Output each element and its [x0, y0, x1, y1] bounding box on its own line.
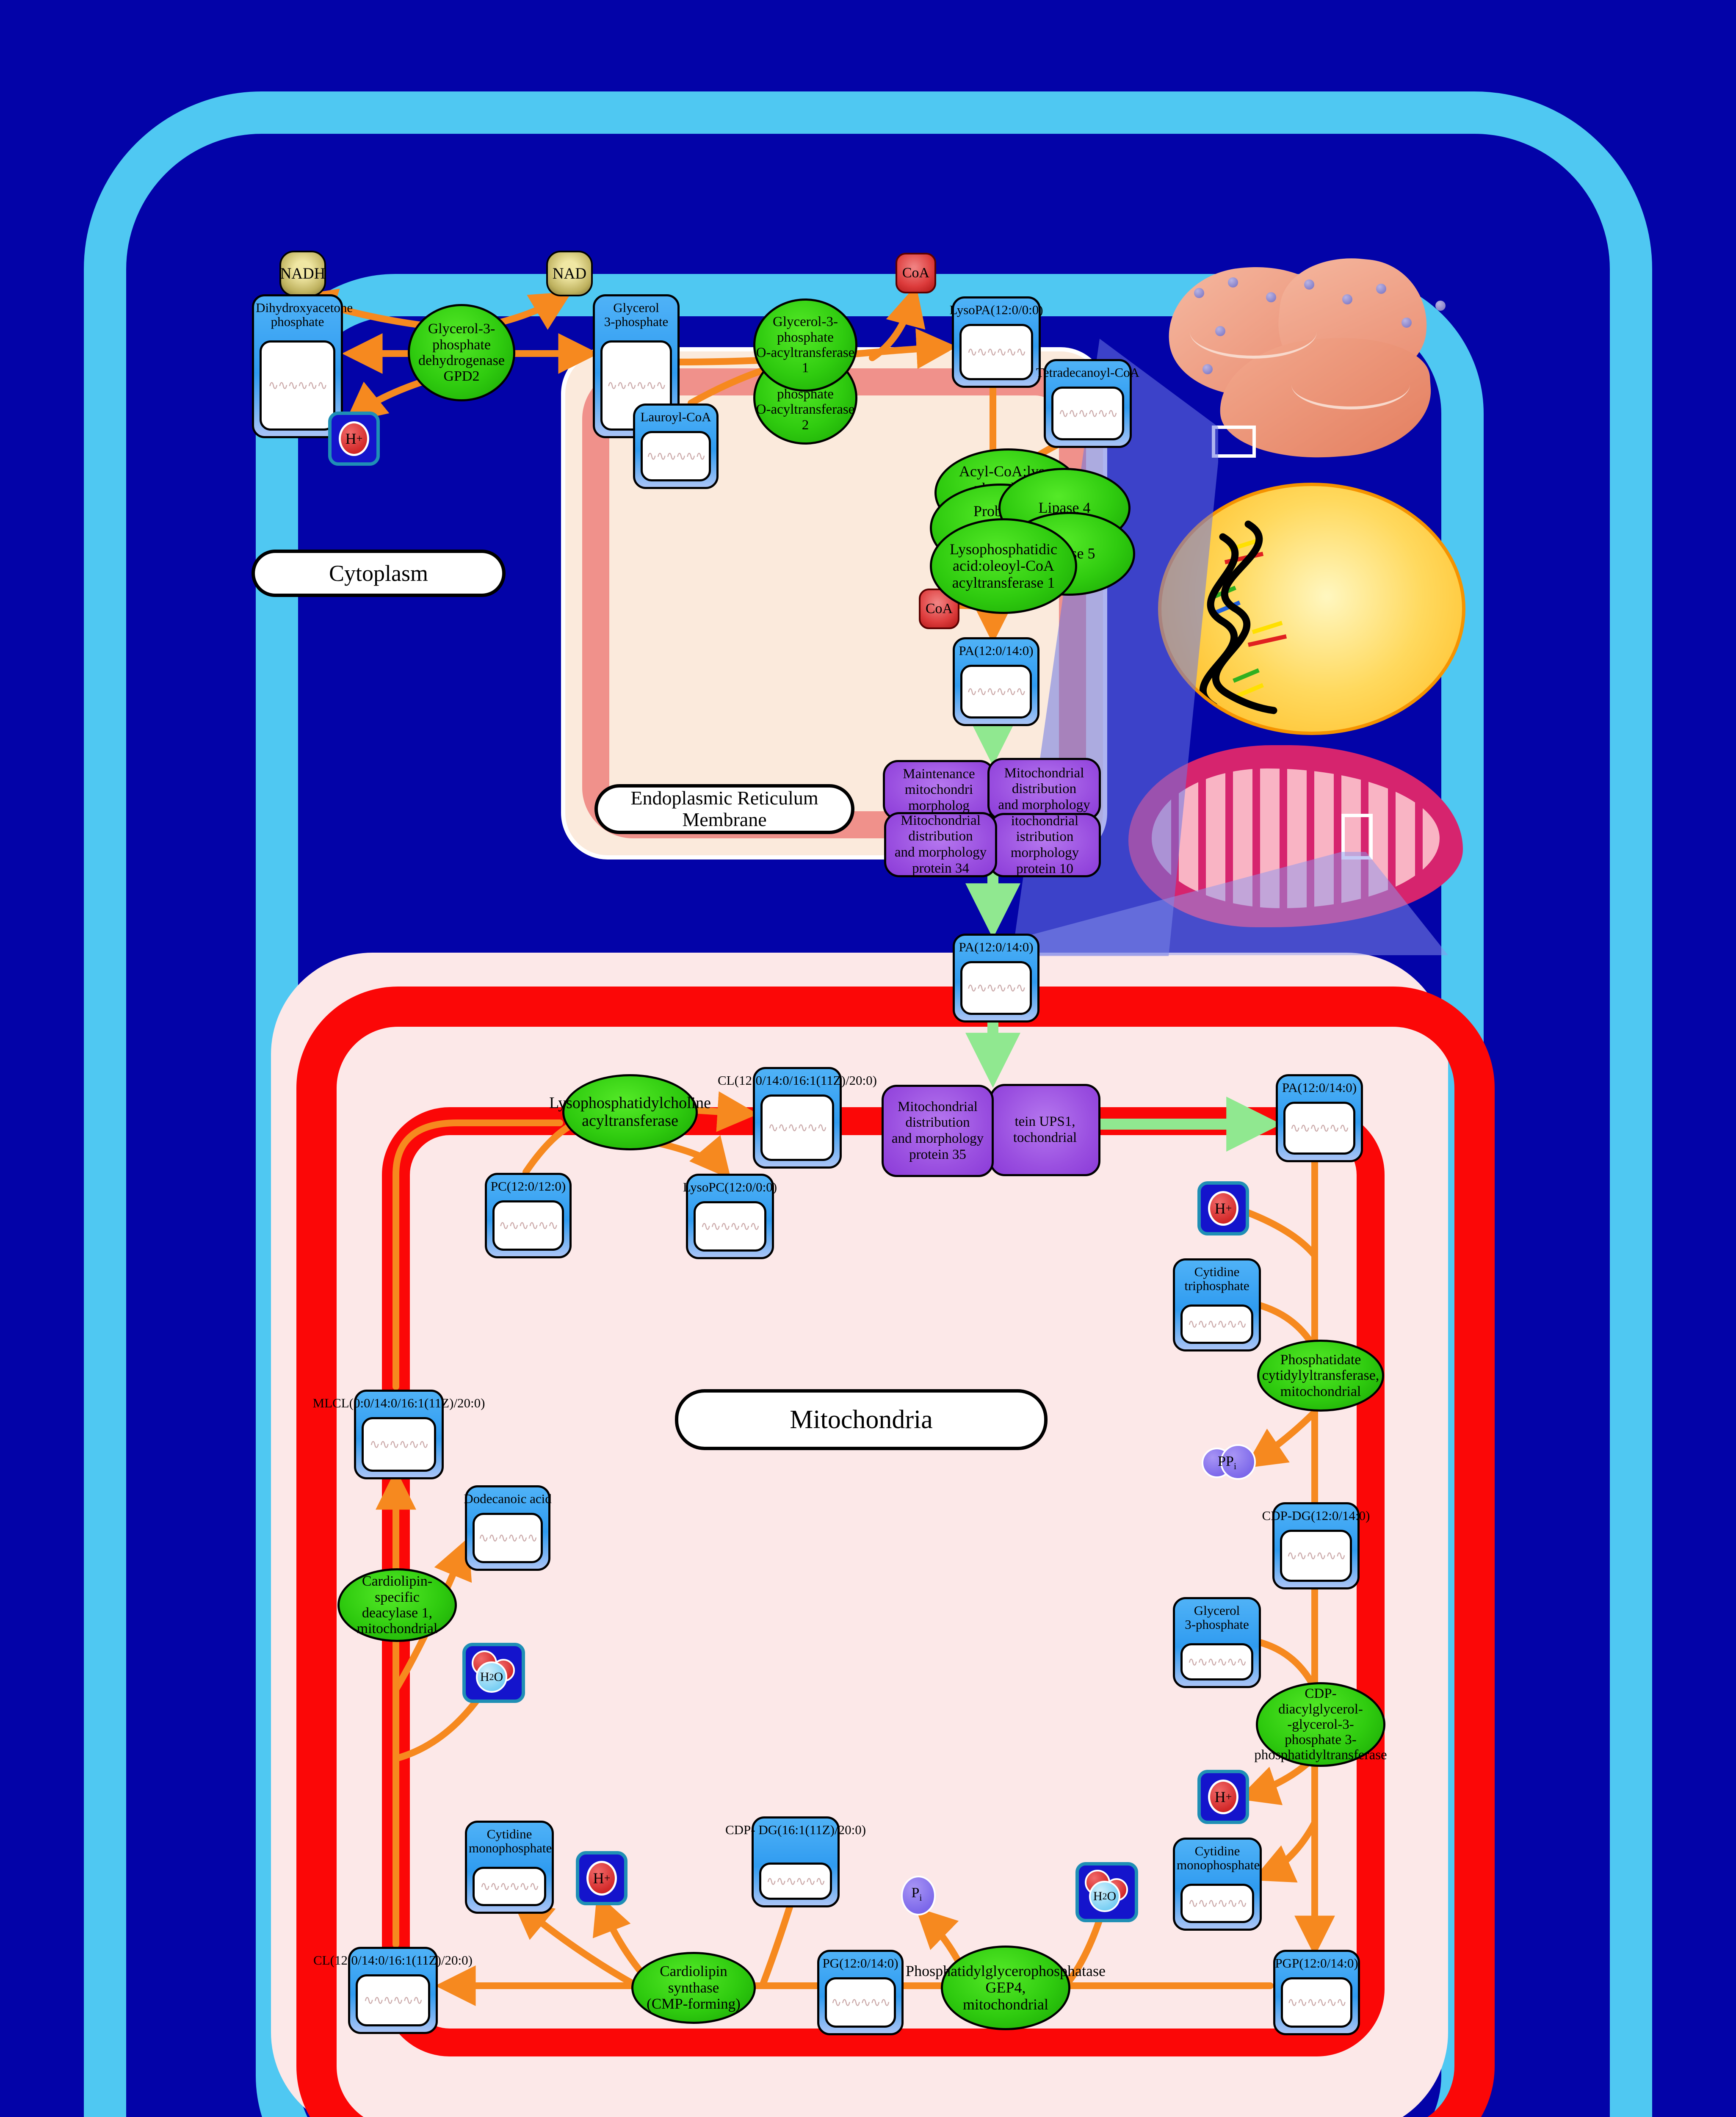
node-pa-er[interactable]: PA(12:0/14:0) ∿∿∿∿∿∿	[953, 637, 1039, 726]
structure-panel: ∿∿∿∿∿∿	[960, 961, 1032, 1015]
enzyme-gpat1[interactable]: Glycerol-3- phosphate O-acyltransferase …	[753, 298, 857, 392]
node-label: PC(12:0/12:0)	[491, 1179, 566, 1193]
blob-label: Pi	[901, 1885, 932, 1903]
enzyme-label: Phosphatidylglycerophosphatase GEP4, mit…	[906, 1963, 1106, 2013]
node-hplus-right2[interactable]: H+	[1197, 1770, 1249, 1824]
structure-panel: ∿∿∿∿∿∿	[959, 324, 1033, 380]
arrow-to-cmp-right	[1261, 1823, 1315, 1877]
node-pi[interactable]: Pi	[901, 1876, 932, 1912]
structure-panel: ∿∿∿∿∿∿	[760, 1094, 834, 1161]
badge-label: CoA	[902, 265, 929, 281]
protein-label: Mitochondrial distribution and morpholog…	[895, 813, 987, 876]
badge-label: NAD	[553, 265, 586, 283]
node-label: Cytidine monophosphate	[1177, 1844, 1258, 1872]
structure-panel: ∿∿∿∿∿∿	[1280, 1530, 1352, 1582]
node-hplus-bottom[interactable]: H+	[576, 1851, 628, 1905]
node-cl-top[interactable]: CL(12:0/14:0/16:1(11Z)/20:0) ∿∿∿∿∿∿	[753, 1067, 842, 1169]
mitochondria-label: Mitochondria	[675, 1389, 1048, 1450]
structure-panel: ∿∿∿∿∿∿	[473, 1513, 543, 1563]
node-label: LysoPA(12:0/0:0)	[949, 303, 1043, 317]
node-ctp[interactable]: Cytidine triphosphate ∿∿∿∿∿∿	[1173, 1258, 1261, 1351]
node-g3p-inner[interactable]: Glycerol 3-phosphate ∿∿∿∿∿∿	[1173, 1597, 1261, 1688]
enzyme-cld1[interactable]: Cardiolipin- specific deacylase 1, mitoc…	[337, 1568, 457, 1642]
node-cl-bottom[interactable]: CL(12:0/14:0/16:1(11Z)/20:0) ∿∿∿∿∿∿	[348, 1947, 438, 2034]
enzyme-cardiolipin-synthase[interactable]: Cardiolipin synthase (CMP-forming)	[631, 1952, 756, 2024]
node-lysopc[interactable]: LysoPC(12:0/0:0) ∿∿∿∿∿∿	[686, 1174, 774, 1259]
enzyme-gpd2[interactable]: Glycerol-3- phosphate dehydrogenase GPD2	[408, 304, 515, 401]
structure-panel: ∿∿∿∿∿∿	[1180, 1643, 1253, 1680]
node-h2o-left[interactable]: H2O	[462, 1643, 525, 1703]
structure-panel: ∿∿∿∿∿∿	[825, 1977, 896, 2028]
edge-cdpdg-bottom	[763, 1898, 793, 1984]
structure-panel: ∿∿∿∿∿∿	[960, 665, 1032, 719]
node-cdp-dg-bottom[interactable]: CDP- DG(16:1(11Z)/20:0) ∿∿∿∿∿∿	[752, 1816, 840, 1907]
structure-panel: ∿∿∿∿∿∿	[1281, 1977, 1352, 2028]
protein-label: Mitochondrial distribution and morpholog…	[998, 766, 1090, 813]
node-label: PA(12:0/14:0)	[959, 644, 1033, 658]
edge-hplus-right1	[1246, 1212, 1315, 1255]
arrow-to-cmp-left	[519, 1904, 635, 1985]
enzyme-label: Glycerol-3- phosphate dehydrogenase GPD2	[418, 321, 505, 384]
structure-panel: ∿∿∿∿∿∿	[759, 1863, 832, 1900]
node-lauroyl-coa[interactable]: Lauroyl-CoA ∿∿∿∿∿∿	[633, 404, 719, 489]
structure-panel: ∿∿∿∿∿∿	[492, 1200, 564, 1251]
node-label: LysoPC(12:0/0:0)	[683, 1180, 777, 1194]
node-label: PA(12:0/14:0)	[1282, 1081, 1357, 1094]
edge-h2o-left	[398, 1697, 479, 1758]
node-coa-top[interactable]: CoA	[896, 253, 936, 293]
structure-panel: ∿∿∿∿∿∿	[1180, 1304, 1253, 1344]
node-ppi[interactable]: PPi	[1202, 1442, 1252, 1484]
node-cmp-left[interactable]: Cytidine monophosphate ∿∿∿∿∿∿	[465, 1821, 554, 1914]
badge-label: NADH	[280, 265, 326, 283]
structure-panel: ∿∿∿∿∿∿	[362, 1417, 436, 1472]
enzyme-lpaat1[interactable]: Lysophosphatidic acid:oleoyl-CoA acyltra…	[930, 518, 1077, 614]
hplus-icon: H+	[1208, 1780, 1238, 1814]
hplus-icon: H+	[586, 1861, 617, 1896]
structure-panel: ∿∿∿∿∿∿	[356, 1974, 430, 2026]
structure-panel: ∿∿∿∿∿∿	[260, 340, 335, 431]
structure-panel: ∿∿∿∿∿∿	[1283, 1102, 1355, 1155]
enzyme-lpcat[interactable]: Lysophosphatidylcholine acyltransferase	[562, 1074, 698, 1150]
protein-ups1[interactable]: tein UPS1, tochondrial	[990, 1084, 1100, 1176]
blob-label: PPi	[1202, 1454, 1252, 1472]
node-label: PA(12:0/14:0)	[959, 940, 1033, 954]
protein-mdm35[interactable]: Mitochondrial distribution and morpholog…	[882, 1085, 994, 1177]
edge-pc-lpcat	[526, 1126, 569, 1172]
node-tetradecanoyl-coa[interactable]: Tetradecanoyl-CoA ∿∿∿∿∿∿	[1044, 359, 1132, 448]
node-pgp[interactable]: PGP(12:0/14:0) ∿∿∿∿∿∿	[1273, 1950, 1360, 2035]
node-nad[interactable]: NAD	[546, 251, 593, 296]
hplus-icon: H+	[339, 421, 369, 456]
node-label: Cytidine triphosphate	[1177, 1265, 1257, 1293]
edge-g3p-inner	[1258, 1642, 1315, 1689]
node-label: CL(12:0/14:0/16:1(11Z)/20:0)	[313, 1953, 473, 1967]
node-pa-inner[interactable]: PA(12:0/14:0) ∿∿∿∿∿∿	[1276, 1074, 1363, 1162]
arrow-to-ppi	[1252, 1412, 1315, 1463]
enzyme-label: Glycerol-3- phosphate O-acyltransferase …	[756, 314, 855, 376]
node-h2o-bottom[interactable]: H2O	[1075, 1862, 1138, 1922]
node-label: Glycerol 3-phosphate	[597, 301, 676, 329]
enzyme-label: CDP- diacylglycerol- -glycerol-3- phosph…	[1254, 1686, 1387, 1763]
protein-mdm10[interactable]: itochondrial istribution morphology prot…	[989, 813, 1101, 877]
cytoplasm-label: Cytoplasm	[252, 550, 506, 597]
node-label: CL(12:0/14:0/16:1(11Z)/20:0)	[718, 1073, 877, 1087]
node-label: Lauroyl-CoA	[637, 410, 715, 424]
structure-panel: ∿∿∿∿∿∿	[473, 1867, 546, 1906]
structure-panel: ∿∿∿∿∿∿	[694, 1201, 766, 1252]
node-lysopa[interactable]: LysoPA(12:0/0:0) ∿∿∿∿∿∿	[952, 296, 1041, 388]
er-membrane-label: Endoplasmic Reticulum Membrane	[594, 784, 854, 834]
enzyme-label: Cardiolipin synthase (CMP-forming)	[647, 1963, 741, 2012]
structure-panel: ∿∿∿∿∿∿	[641, 431, 711, 481]
node-cmp-right[interactable]: Cytidine monophosphate ∿∿∿∿∿∿	[1173, 1838, 1262, 1931]
pathway-canvas: NADH NAD CoA CoA Dihydroxyacetone phosph…	[0, 0, 1736, 2117]
node-label: CDP-DG(12:0/14:0)	[1262, 1509, 1370, 1523]
enzyme-label: Lysophosphatidic acid:oleoyl-CoA acyltra…	[950, 541, 1057, 591]
enzyme-cdp-g3p-phosphatidyltransferase[interactable]: CDP- diacylglycerol- -glycerol-3- phosph…	[1256, 1682, 1385, 1767]
node-label: Dodecanoic acid	[464, 1492, 551, 1506]
node-hplus-right1[interactable]: H+	[1197, 1181, 1249, 1235]
structure-panel: ∿∿∿∿∿∿	[1051, 387, 1124, 440]
node-mlcl[interactable]: MLCL(0:0/14:0/16:1(11Z)/20:0) ∿∿∿∿∿∿	[354, 1390, 444, 1479]
node-label: MLCL(0:0/14:0/16:1(11Z)/20:0)	[313, 1396, 485, 1410]
protein-mmm1[interactable]: Maintenance mitochondri morpholog	[883, 760, 995, 820]
arrow-lpcat-lysopc	[658, 1143, 725, 1172]
node-pa-mid[interactable]: PA(12:0/14:0) ∿∿∿∿∿∿	[953, 934, 1039, 1023]
enzyme-label: Cardiolipin- specific deacylase 1, mitoc…	[357, 1573, 438, 1637]
node-label: Dihydroxyacetone phosphate	[256, 301, 339, 329]
node-pc[interactable]: PC(12:0/12:0) ∿∿∿∿∿∿	[485, 1173, 572, 1258]
node-label: PG(12:0/14:0)	[822, 1956, 898, 1970]
node-pg[interactable]: PG(12:0/14:0) ∿∿∿∿∿∿	[817, 1950, 904, 2035]
hplus-icon: H+	[1208, 1191, 1238, 1226]
enzyme-label: Lysophosphatidylcholine acyltransferase	[549, 1094, 711, 1130]
node-label: CDP- DG(16:1(11Z)/20:0)	[725, 1823, 866, 1837]
protein-label: Maintenance mitochondri morpholog	[903, 766, 975, 814]
enzyme-gep4[interactable]: Phosphatidylglycerophosphatase GEP4, mit…	[941, 1946, 1070, 2030]
badge-label: CoA	[926, 601, 953, 617]
node-cdp-dg-right[interactable]: CDP-DG(12:0/14:0) ∿∿∿∿∿∿	[1272, 1502, 1360, 1589]
node-label: Cytidine monophosphate	[469, 1827, 550, 1855]
node-nadh[interactable]: NADH	[279, 251, 326, 296]
protein-label: tein UPS1, tochondrial	[1013, 1114, 1077, 1146]
node-dodecanoic-acid[interactable]: Dodecanoic acid ∿∿∿∿∿∿	[465, 1485, 550, 1571]
enzyme-pct[interactable]: Phosphatidate cytidylyltransferase, mito…	[1257, 1340, 1384, 1412]
node-label: Tetradecanoyl-CoA	[1036, 365, 1139, 379]
node-label: PGP(12:0/14:0)	[1275, 1956, 1358, 1970]
protein-mdm-distribution[interactable]: Mitochondrial distribution and morpholog…	[987, 758, 1101, 821]
protein-mdm34[interactable]: Mitochondrial distribution and morpholog…	[884, 812, 997, 877]
protein-label: Mitochondrial distribution and morpholog…	[892, 1099, 984, 1163]
node-hplus-top[interactable]: H+	[328, 412, 380, 466]
structure-panel: ∿∿∿∿∿∿	[1180, 1884, 1254, 1923]
protein-label: itochondrial istribution morphology prot…	[1011, 813, 1079, 877]
enzyme-label: Phosphatidate cytidylyltransferase, mito…	[1262, 1352, 1379, 1399]
node-label: Glycerol 3-phosphate	[1177, 1603, 1257, 1632]
